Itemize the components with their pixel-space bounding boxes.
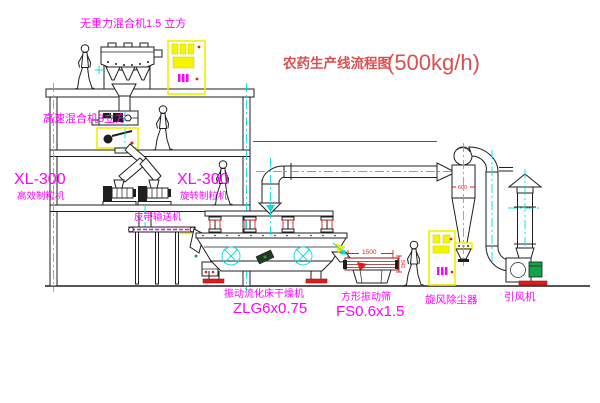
- worker-ground: [404, 241, 424, 285]
- fluid-bed-dryer: [196, 211, 352, 283]
- label-dryer-model: ZLG6x0.75: [233, 300, 307, 317]
- label-fan: 引风机: [504, 290, 536, 303]
- label-cyclone: 旋风除尘器: [425, 293, 478, 306]
- screen-height-dim: 540: [399, 260, 405, 269]
- pesticide-line-flow-diagram: 1500 540 600: [0, 0, 600, 403]
- worker-floor2: [153, 106, 173, 150]
- induced-draft-fan: [506, 248, 547, 285]
- control-cabinet-top: [168, 41, 205, 94]
- label-dryer-name: 振动流化床干燥机: [224, 287, 304, 300]
- fan-motor: [529, 262, 542, 277]
- granulator-left: [103, 180, 136, 205]
- gravity-free-mixer: [95, 43, 162, 112]
- label-granulator-left-name: 高效制粒机: [17, 190, 65, 202]
- label-screen-model: FS0.6x1.5: [336, 303, 404, 320]
- diagram-canvas: 1500 540 600: [0, 0, 600, 403]
- cyclone-dia-dim: 600: [458, 185, 467, 191]
- worker-roof: [75, 45, 95, 89]
- label-high-speed-mixer: 高速混合机3立方: [43, 111, 126, 125]
- label-granulator-left-model: XL-300: [14, 171, 66, 188]
- granulator-right: [138, 180, 171, 205]
- screen-length-dim: 1500: [362, 249, 377, 256]
- vibrating-screen: 1500 540: [343, 248, 405, 283]
- label-granulator-right-model: XL-300: [177, 171, 229, 188]
- page-title-capacity: (500kg/h): [387, 50, 480, 75]
- spring-hangers: [209, 216, 333, 233]
- page-title: 农药生产线流程图: [282, 55, 391, 71]
- control-cabinet-right: [429, 231, 455, 285]
- label-gravity-mixer: 无重力混合机1.5 立方: [80, 16, 186, 30]
- label-granulator-right-name: 旋转制粒机: [180, 190, 228, 202]
- label-screen-name: 方形振动筛: [341, 290, 391, 303]
- label-belt-conveyor: 皮带输送机: [134, 211, 182, 223]
- riser-duct: [469, 147, 513, 271]
